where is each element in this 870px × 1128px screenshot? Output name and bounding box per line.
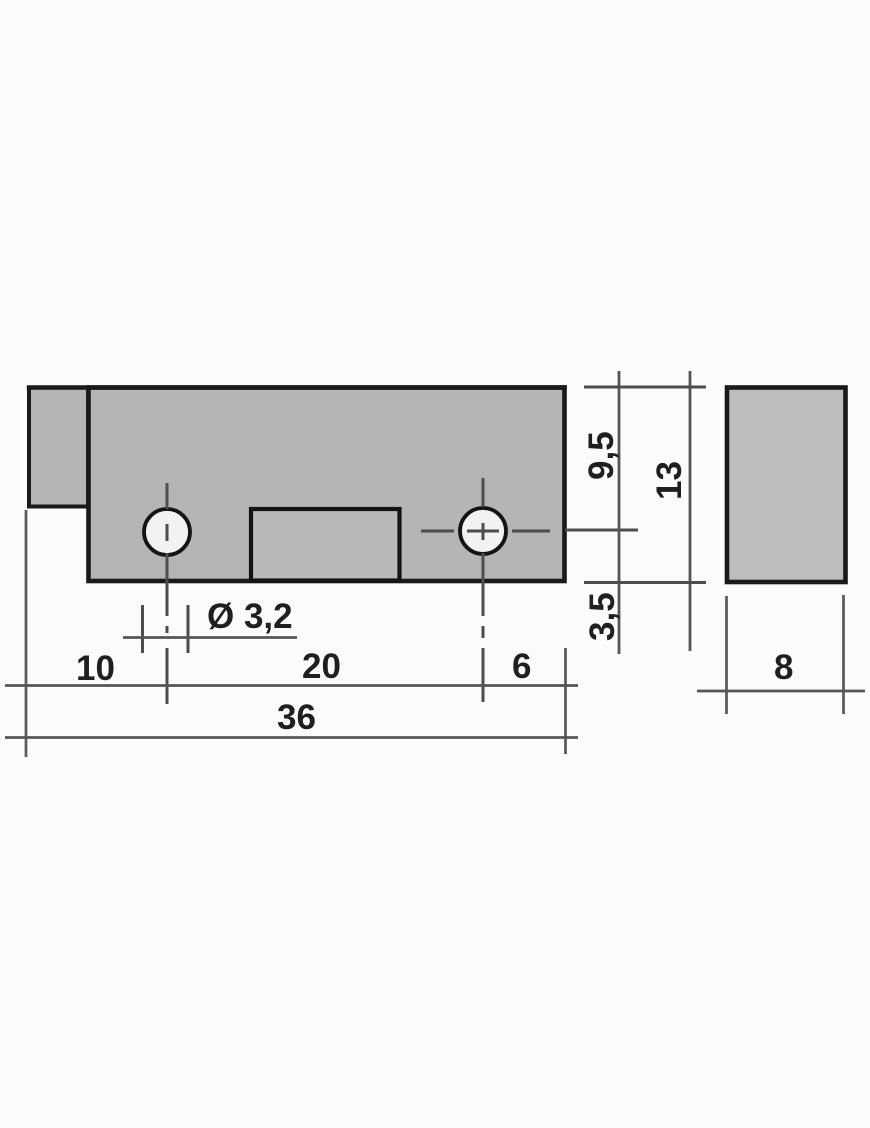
svg-text:8: 8 xyxy=(774,648,793,687)
svg-text:36: 36 xyxy=(277,698,316,737)
svg-text:3,5: 3,5 xyxy=(583,592,622,641)
svg-text:13: 13 xyxy=(650,461,689,500)
svg-text:Ø 3,2: Ø 3,2 xyxy=(207,597,293,636)
svg-text:20: 20 xyxy=(302,647,341,686)
svg-text:10: 10 xyxy=(76,649,115,688)
svg-text:6: 6 xyxy=(512,647,531,686)
svg-text:9,5: 9,5 xyxy=(582,431,621,480)
